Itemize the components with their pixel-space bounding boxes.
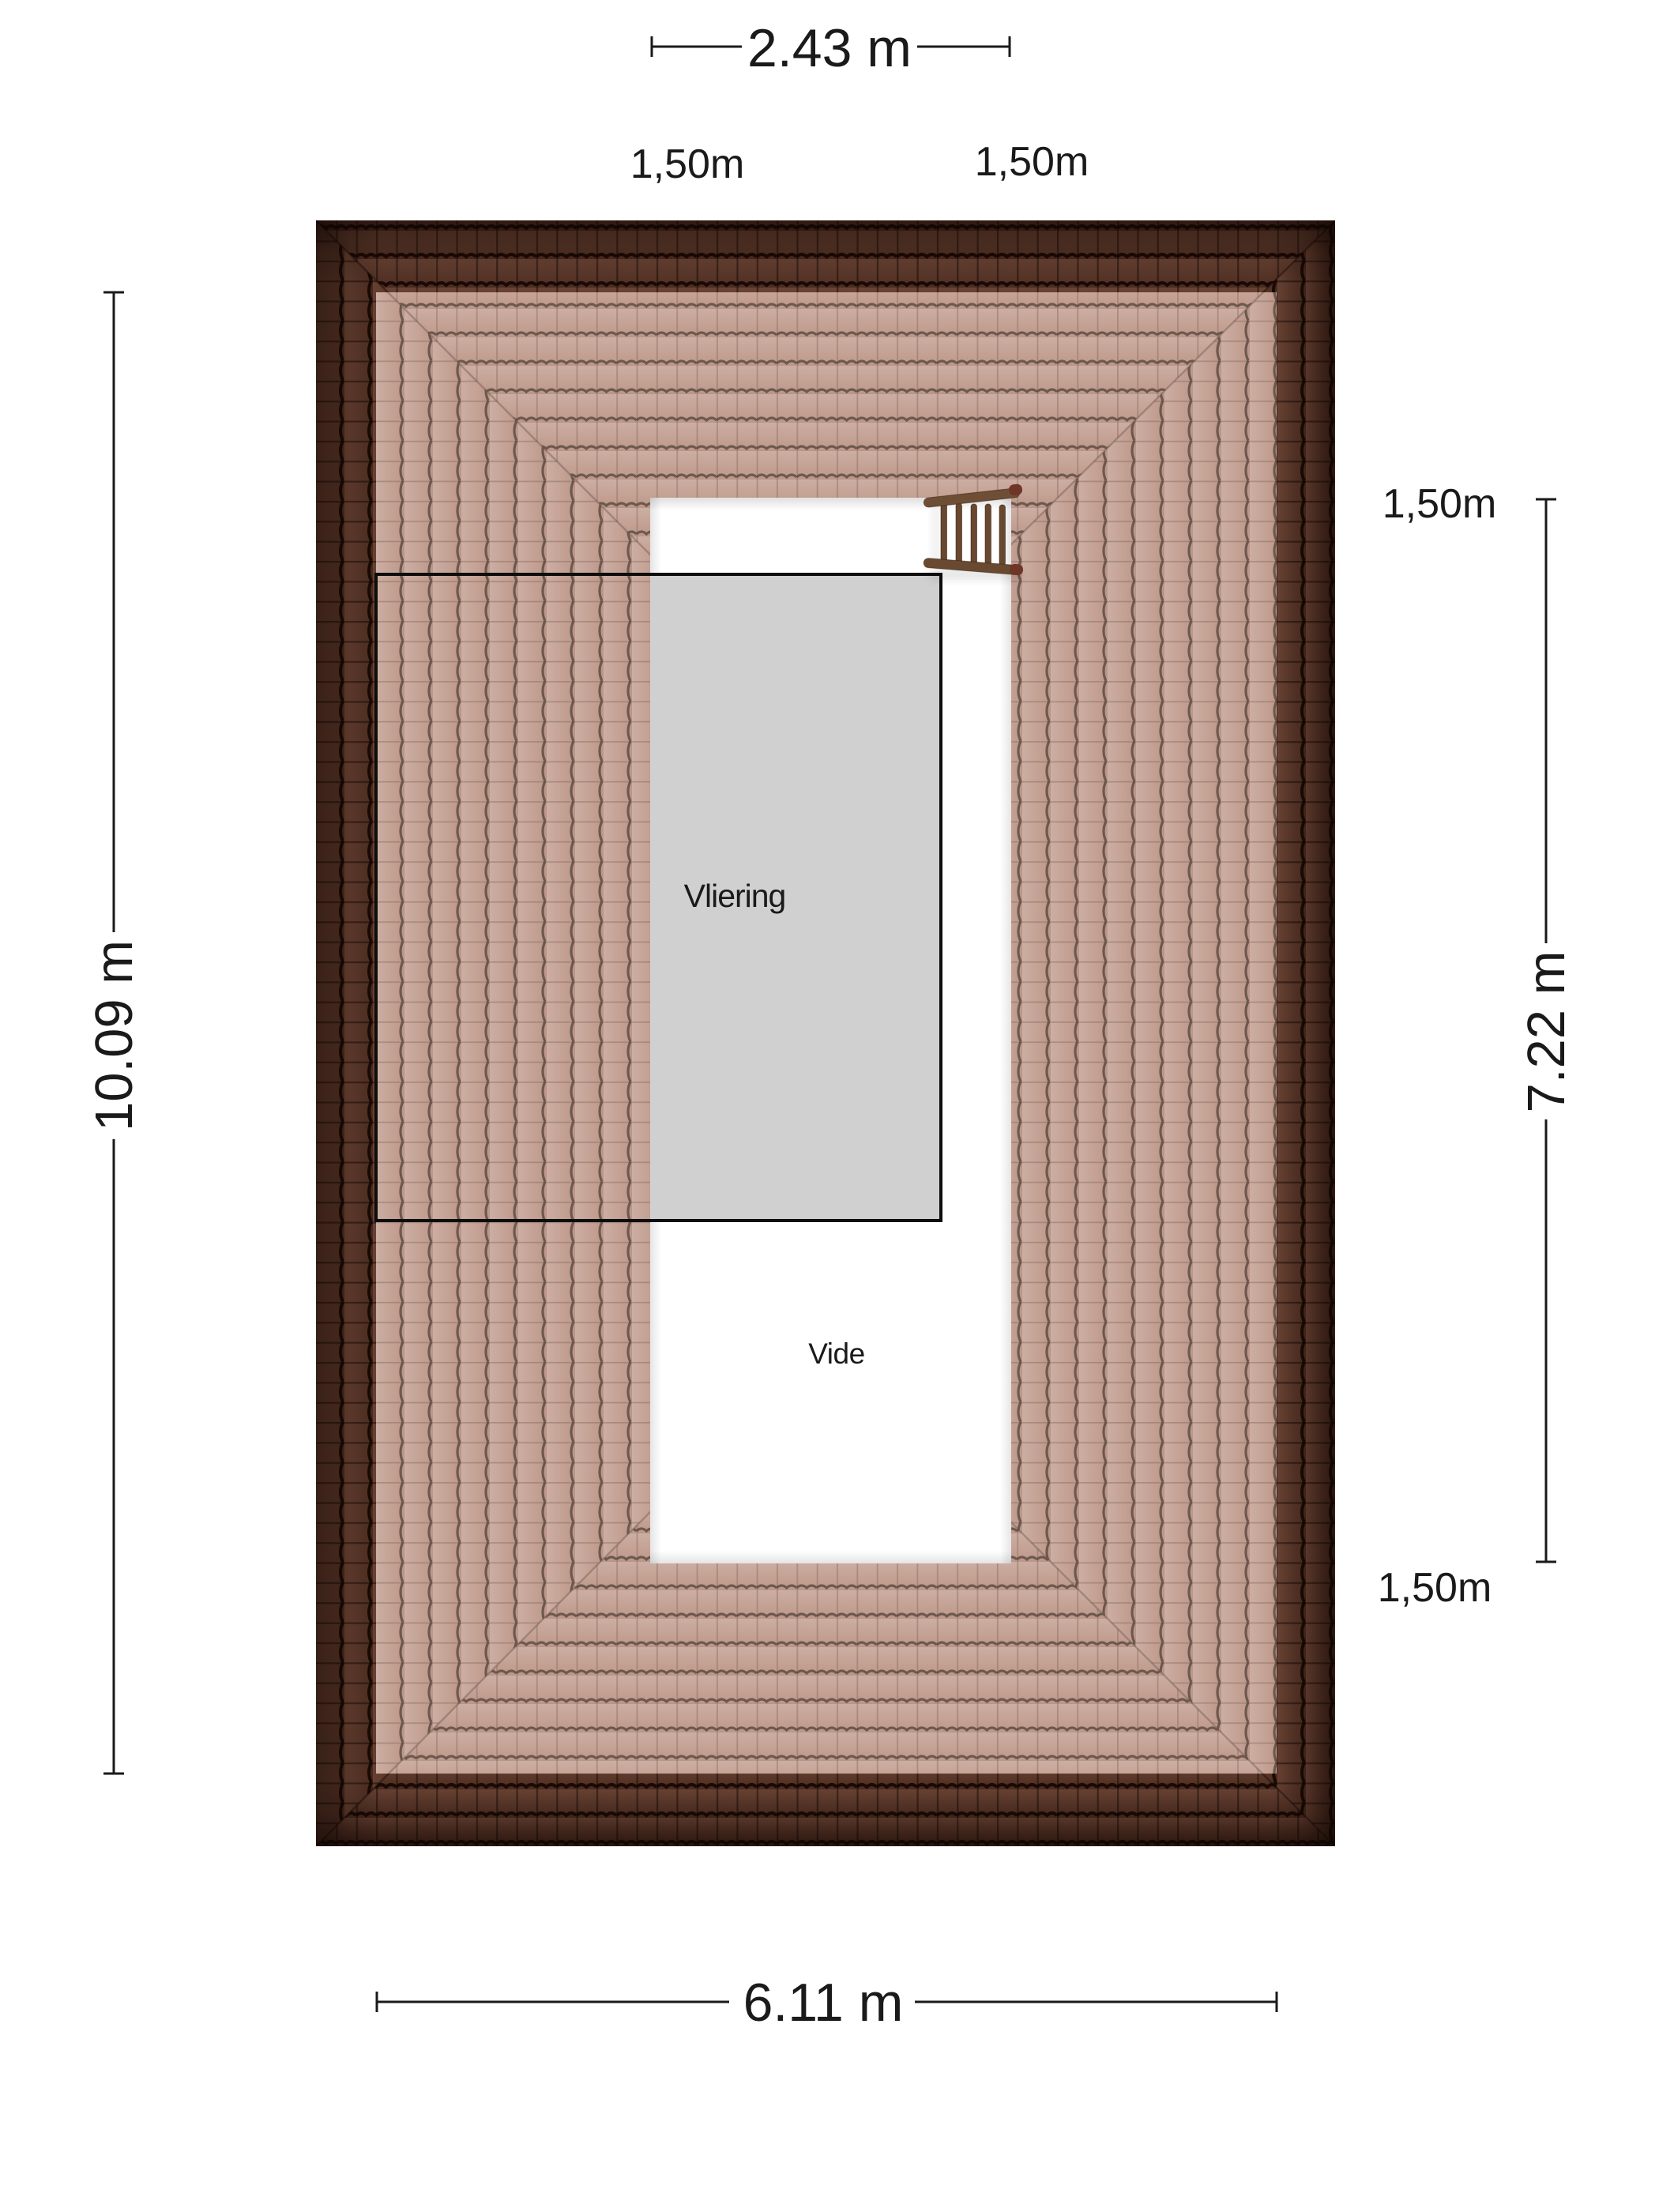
svg-text:7.22 m: 7.22 m [1517,951,1576,1113]
svg-text:Vide: Vide [808,1337,864,1370]
svg-text:10.09 m: 10.09 m [85,940,144,1131]
svg-text:1,50m: 1,50m [1378,1565,1492,1611]
svg-text:6.11 m: 6.11 m [743,1973,904,2033]
svg-text:Vliering: Vliering [684,878,786,914]
svg-text:1,50m: 1,50m [975,139,1089,185]
svg-text:1,50m: 1,50m [630,141,745,187]
svg-text:1,50m: 1,50m [1382,481,1497,527]
svg-text:2.43 m: 2.43 m [747,18,912,78]
